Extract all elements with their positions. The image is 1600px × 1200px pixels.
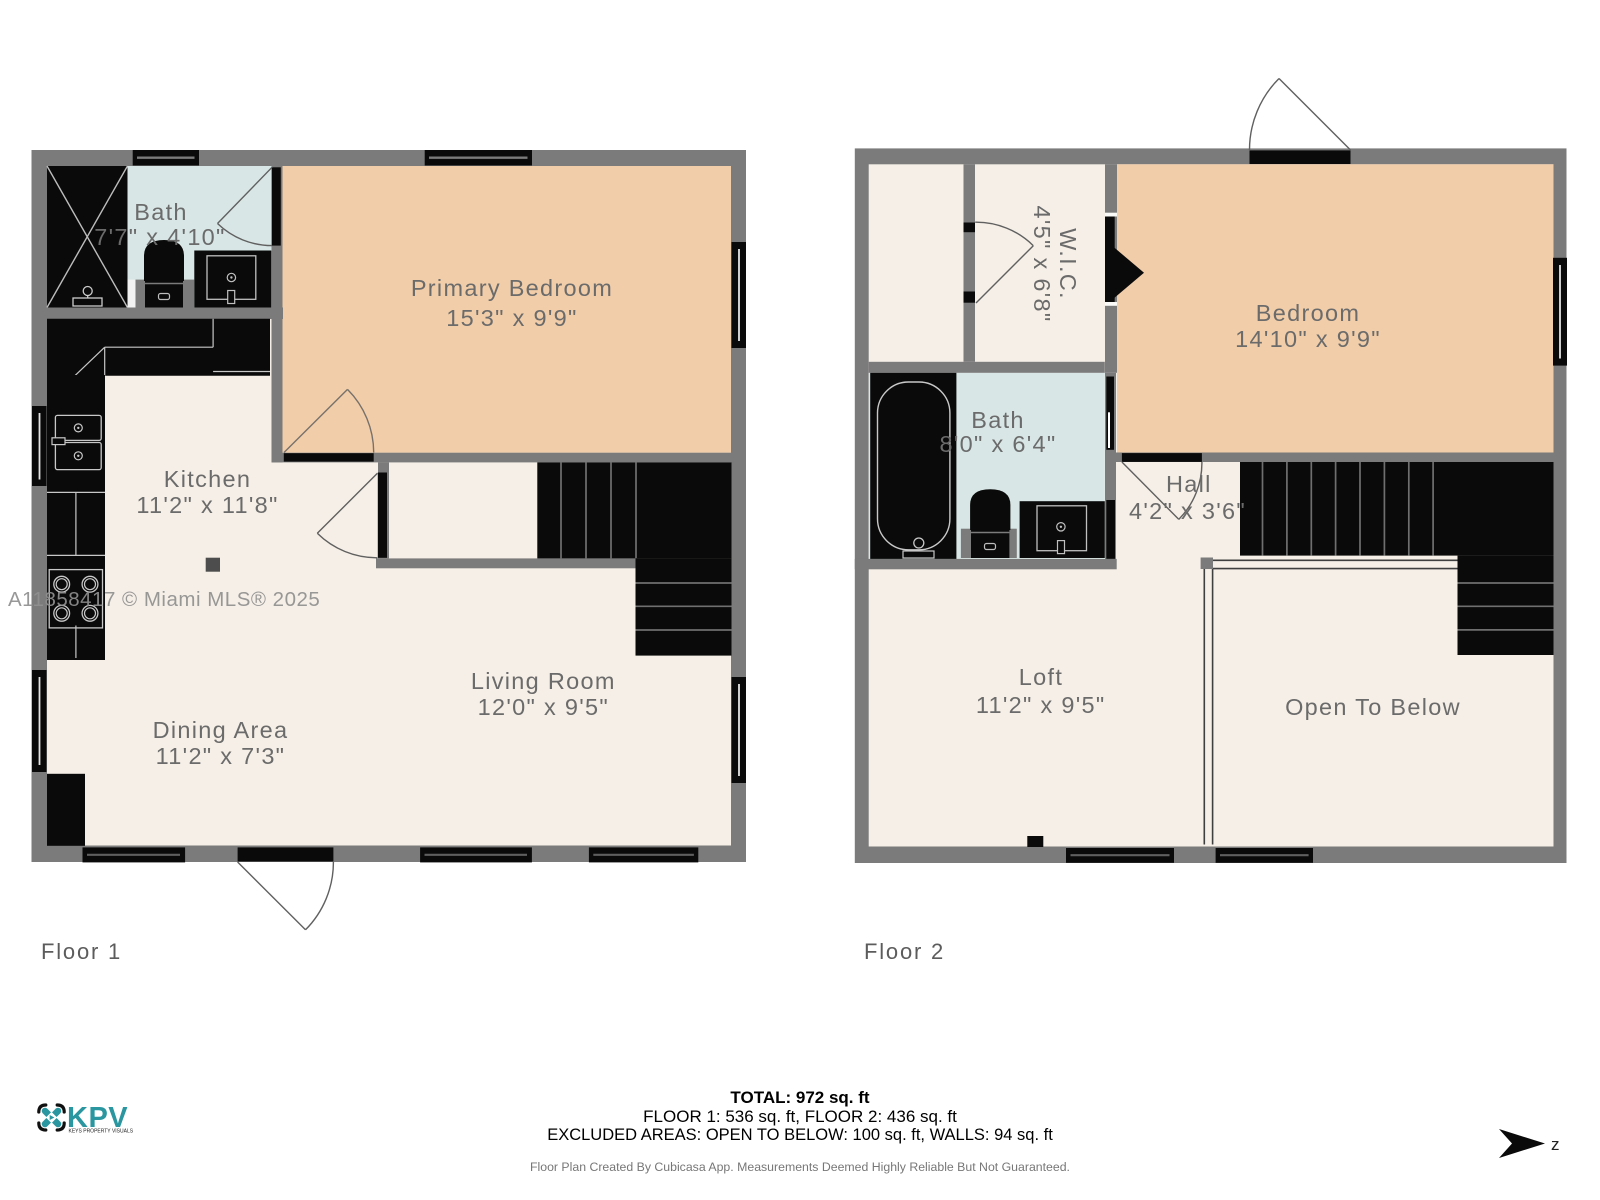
svg-text:Hall: Hall [1166,471,1212,497]
svg-text:TOTAL: 972 sq. ft: TOTAL: 972 sq. ft [730,1088,870,1107]
svg-text:12'0" x 9'5": 12'0" x 9'5" [478,694,609,720]
svg-text:Dining Area: Dining Area [153,717,289,743]
svg-text:4'2" x 3'6": 4'2" x 3'6" [1129,498,1246,524]
svg-text:Primary Bedroom: Primary Bedroom [411,275,613,301]
svg-text:KEYS PROPERTY VISUALS: KEYS PROPERTY VISUALS [69,1129,134,1135]
svg-text:EXCLUDED AREAS: OPEN TO BELOW:: EXCLUDED AREAS: OPEN TO BELOW: 100 sq. f… [547,1126,1053,1144]
svg-text:8'0" x 6'4": 8'0" x 6'4" [939,431,1056,457]
svg-text:11'2" x 9'5": 11'2" x 9'5" [976,692,1106,718]
svg-text:14'10" x 9'9": 14'10" x 9'9" [1235,326,1381,352]
svg-text:Kitchen: Kitchen [164,466,251,492]
svg-text:Floor Plan Created By Cubicasa: Floor Plan Created By Cubicasa App. Meas… [530,1160,1070,1174]
svg-text:W.I.C.: W.I.C. [1055,228,1081,300]
svg-text:Floor 2: Floor 2 [864,939,945,964]
svg-text:z: z [1551,1135,1560,1154]
svg-text:Open To Below: Open To Below [1285,694,1461,720]
svg-text:A11858417 © Miami MLS® 2025: A11858417 © Miami MLS® 2025 [8,588,320,611]
svg-text:FLOOR 1: 536 sq. ft, FLOOR 2:: FLOOR 1: 536 sq. ft, FLOOR 2: 436 sq. ft [643,1107,957,1126]
svg-text:11'2" x 11'8": 11'2" x 11'8" [136,492,278,518]
svg-text:Bath: Bath [971,407,1025,433]
svg-text:7'7" x 4'10": 7'7" x 4'10" [94,224,225,250]
svg-text:Floor 1: Floor 1 [41,939,122,964]
svg-text:Living Room: Living Room [471,668,616,694]
svg-text:Bath: Bath [134,199,188,225]
svg-text:15'3" x 9'9": 15'3" x 9'9" [446,305,577,331]
svg-text:4'5" x 6'8": 4'5" x 6'8" [1029,205,1055,322]
svg-text:11'2" x 7'3": 11'2" x 7'3" [156,743,286,769]
svg-text:Bedroom: Bedroom [1256,300,1360,326]
svg-text:Loft: Loft [1019,664,1063,690]
